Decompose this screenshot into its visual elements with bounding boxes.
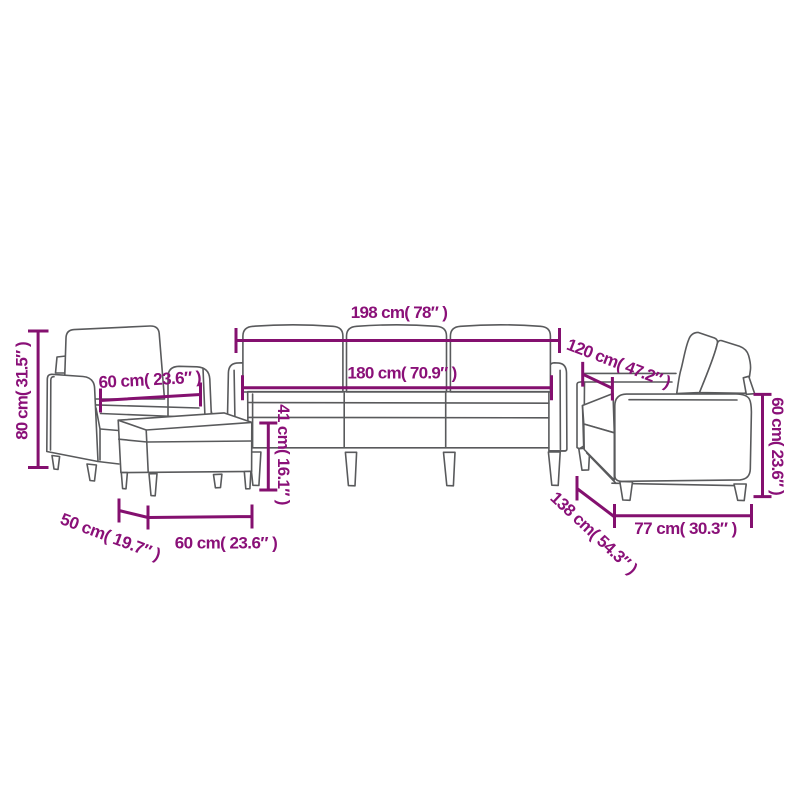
svg-text:41 cm( 16.1″ ): 41 cm( 16.1″ ) bbox=[274, 404, 293, 504]
svg-text:80 cm( 31.5″ ): 80 cm( 31.5″ ) bbox=[13, 342, 32, 440]
svg-text:180 cm( 70.9″ ): 180 cm( 70.9″ ) bbox=[347, 364, 456, 383]
svg-text:60 cm( 23.6″ ): 60 cm( 23.6″ ) bbox=[175, 533, 278, 552]
svg-text:60 cm( 23.6″ ): 60 cm( 23.6″ ) bbox=[768, 397, 787, 495]
svg-text:77 cm( 30.3″ ): 77 cm( 30.3″ ) bbox=[634, 519, 737, 538]
svg-text:198 cm( 78″ ): 198 cm( 78″ ) bbox=[351, 303, 447, 322]
